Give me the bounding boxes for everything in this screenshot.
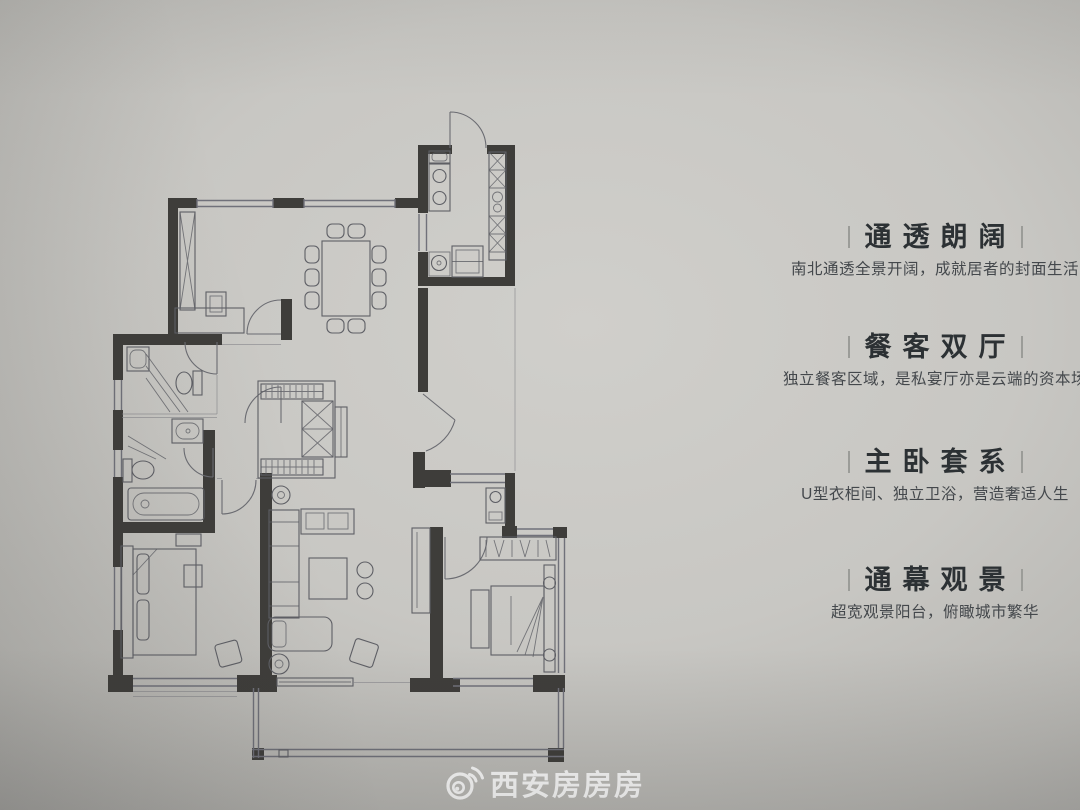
hall-door (245, 387, 281, 423)
feature-desc: U型衣柜间、独立卫浴，营造奢适人生 (770, 485, 1080, 505)
room-dining (305, 224, 386, 333)
room-study (175, 212, 244, 333)
feature-title: 主卧套系 (865, 446, 1017, 478)
corridor-basin (486, 488, 505, 523)
balcony (252, 688, 564, 758)
room-living (268, 486, 430, 686)
room-master-bath (123, 419, 204, 520)
title-tick-right (1021, 336, 1023, 358)
watermark: 西安房房房 (444, 762, 645, 804)
brochure-page: 通透朗阔 南北通透全景开阔，成就居者的封面生活 餐客双厅 独立餐客区域，是私宴厅… (0, 0, 1080, 810)
corridor-door (423, 394, 455, 451)
title-tick-left (848, 569, 850, 591)
feature-desc: 超宽观景阳台，俯瞰城市繁华 (770, 603, 1080, 623)
feature-title-row: 通幕观景 (770, 564, 1080, 596)
master-bedroom-door (222, 480, 256, 514)
title-tick-left (848, 336, 850, 358)
room-second-bedroom (471, 537, 556, 672)
title-tick-right (1021, 569, 1023, 591)
weibo-eye-icon (444, 763, 484, 803)
room-master-bedroom (121, 534, 242, 668)
room-kitchen (429, 151, 506, 277)
room-closet (258, 381, 347, 478)
windows (115, 199, 565, 697)
feature-title: 餐客双厅 (865, 331, 1017, 363)
feature-section-1: 通透朗阔 南北通透全景开阔，成就居者的封面生活 (770, 221, 1080, 280)
feature-title: 通幕观景 (865, 564, 1017, 596)
study-door (247, 300, 281, 334)
feature-section-4: 通幕观景 超宽观景阳台，俯瞰城市繁华 (770, 564, 1080, 623)
entry-door (450, 112, 486, 148)
guest-bath-door (185, 342, 217, 374)
second-bedroom-door (445, 537, 487, 579)
feature-list: 通透朗阔 南北通透全景开阔，成就居者的封面生活 餐客双厅 独立餐客区域，是私宴厅… (770, 0, 1080, 810)
title-tick-right (1021, 451, 1023, 473)
feature-title-row: 通透朗阔 (770, 221, 1080, 253)
watermark-text: 西安房房房 (490, 762, 645, 804)
title-tick-left (848, 226, 850, 248)
feature-section-2: 餐客双厅 独立餐客区域，是私宴厅亦是云端的资本场 (770, 331, 1080, 390)
feature-title-row: 主卧套系 (770, 446, 1080, 478)
feature-section-3: 主卧套系 U型衣柜间、独立卫浴，营造奢适人生 (770, 446, 1080, 505)
feature-desc: 南北通透全景开阔，成就居者的封面生活 (770, 260, 1080, 280)
title-tick-right (1021, 226, 1023, 248)
room-guest-bath (122, 347, 217, 418)
feature-title-row: 餐客双厅 (770, 331, 1080, 363)
title-tick-left (848, 451, 850, 473)
feature-desc: 独立餐客区域，是私宴厅亦是云端的资本场 (770, 370, 1080, 390)
feature-title: 通透朗阔 (865, 221, 1017, 253)
